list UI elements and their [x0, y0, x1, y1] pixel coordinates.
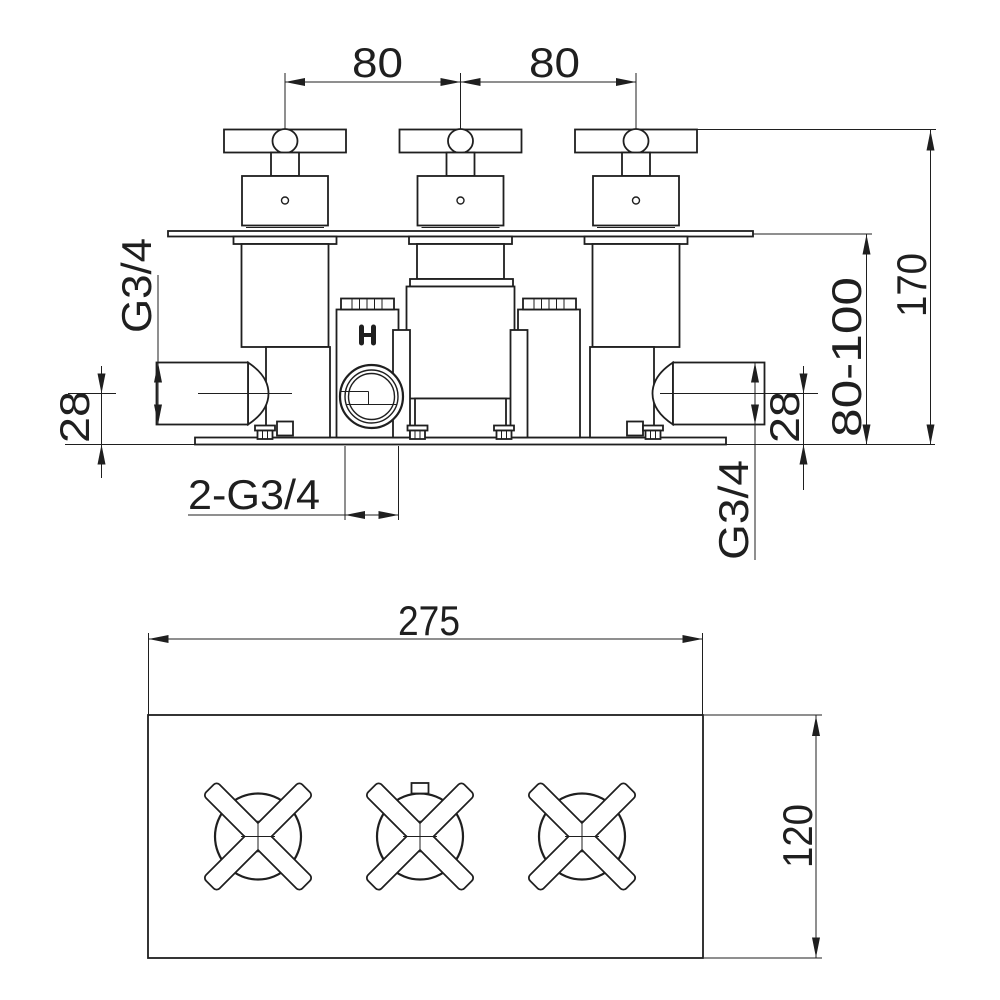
dim-label-spacing-right: 80 — [529, 39, 580, 86]
handle-hub — [448, 129, 473, 153]
fixing-block-left — [277, 422, 293, 436]
technical-drawing-canvas: 80 80 170 80-100 G3/4 G3/4 28 28 2-G3/4 — [0, 0, 1000, 1000]
plan-view: 275 120 — [148, 597, 822, 958]
valve-body-middle — [407, 237, 515, 438]
temperature-button — [412, 783, 429, 794]
bolt — [408, 426, 428, 440]
dim-label-port-thread-right: G3/4 — [710, 460, 757, 560]
dim-label-plate-width: 275 — [398, 597, 460, 644]
thermostat-body — [407, 287, 515, 399]
valve-flange — [234, 237, 337, 245]
handle-right — [575, 129, 697, 228]
plan-handle-left — [203, 782, 313, 892]
thermostat-lip — [410, 279, 513, 287]
handle-middle — [400, 129, 522, 228]
valve-lower-body — [266, 347, 330, 438]
outlet-outer-ring — [340, 365, 403, 428]
dim-label-spacing-left: 80 — [352, 39, 403, 86]
fixing-block-right — [627, 422, 643, 436]
plan-handle-middle — [365, 782, 475, 892]
valve-neck — [417, 244, 504, 279]
bottom-outlet-port — [340, 365, 403, 428]
bolt — [255, 426, 275, 440]
front-view: 80 80 170 80-100 G3/4 G3/4 28 28 2-G3/4 — [51, 39, 936, 560]
valve-cylinder — [242, 244, 329, 347]
handle-stem — [271, 153, 299, 177]
bolt — [494, 426, 514, 440]
handle-head — [242, 176, 328, 226]
valve-cylinder — [593, 244, 680, 347]
plan-handle-right — [527, 782, 637, 892]
dim-label-port-offset-right: 28 — [761, 391, 808, 443]
dim-label-plate-height: 120 — [774, 804, 821, 868]
valve-flange — [585, 237, 688, 245]
dim-label-port-offset-left: 28 — [51, 391, 98, 443]
valve-lower-body — [590, 347, 654, 438]
dim-label-depth-range: 80-100 — [823, 277, 870, 437]
dim-label-port-thread-left: G3/4 — [113, 238, 160, 333]
handle-stem — [447, 153, 475, 177]
handle-stem — [622, 153, 650, 177]
valve-flange — [409, 237, 512, 245]
dim-label-total-height: 170 — [888, 253, 935, 317]
handle-head — [418, 176, 504, 226]
mounting-leg-right — [511, 330, 528, 438]
handle-left — [224, 129, 346, 228]
handle-hub — [624, 129, 649, 153]
handle-hub — [273, 129, 298, 153]
technical-drawing-page: 80 80 170 80-100 G3/4 G3/4 28 28 2-G3/4 — [0, 0, 1000, 1000]
thermostat-lower — [415, 399, 506, 438]
dim-label-bottom-ports: 2-G3/4 — [188, 471, 320, 518]
bolt — [643, 426, 663, 440]
handle-head — [593, 176, 679, 226]
